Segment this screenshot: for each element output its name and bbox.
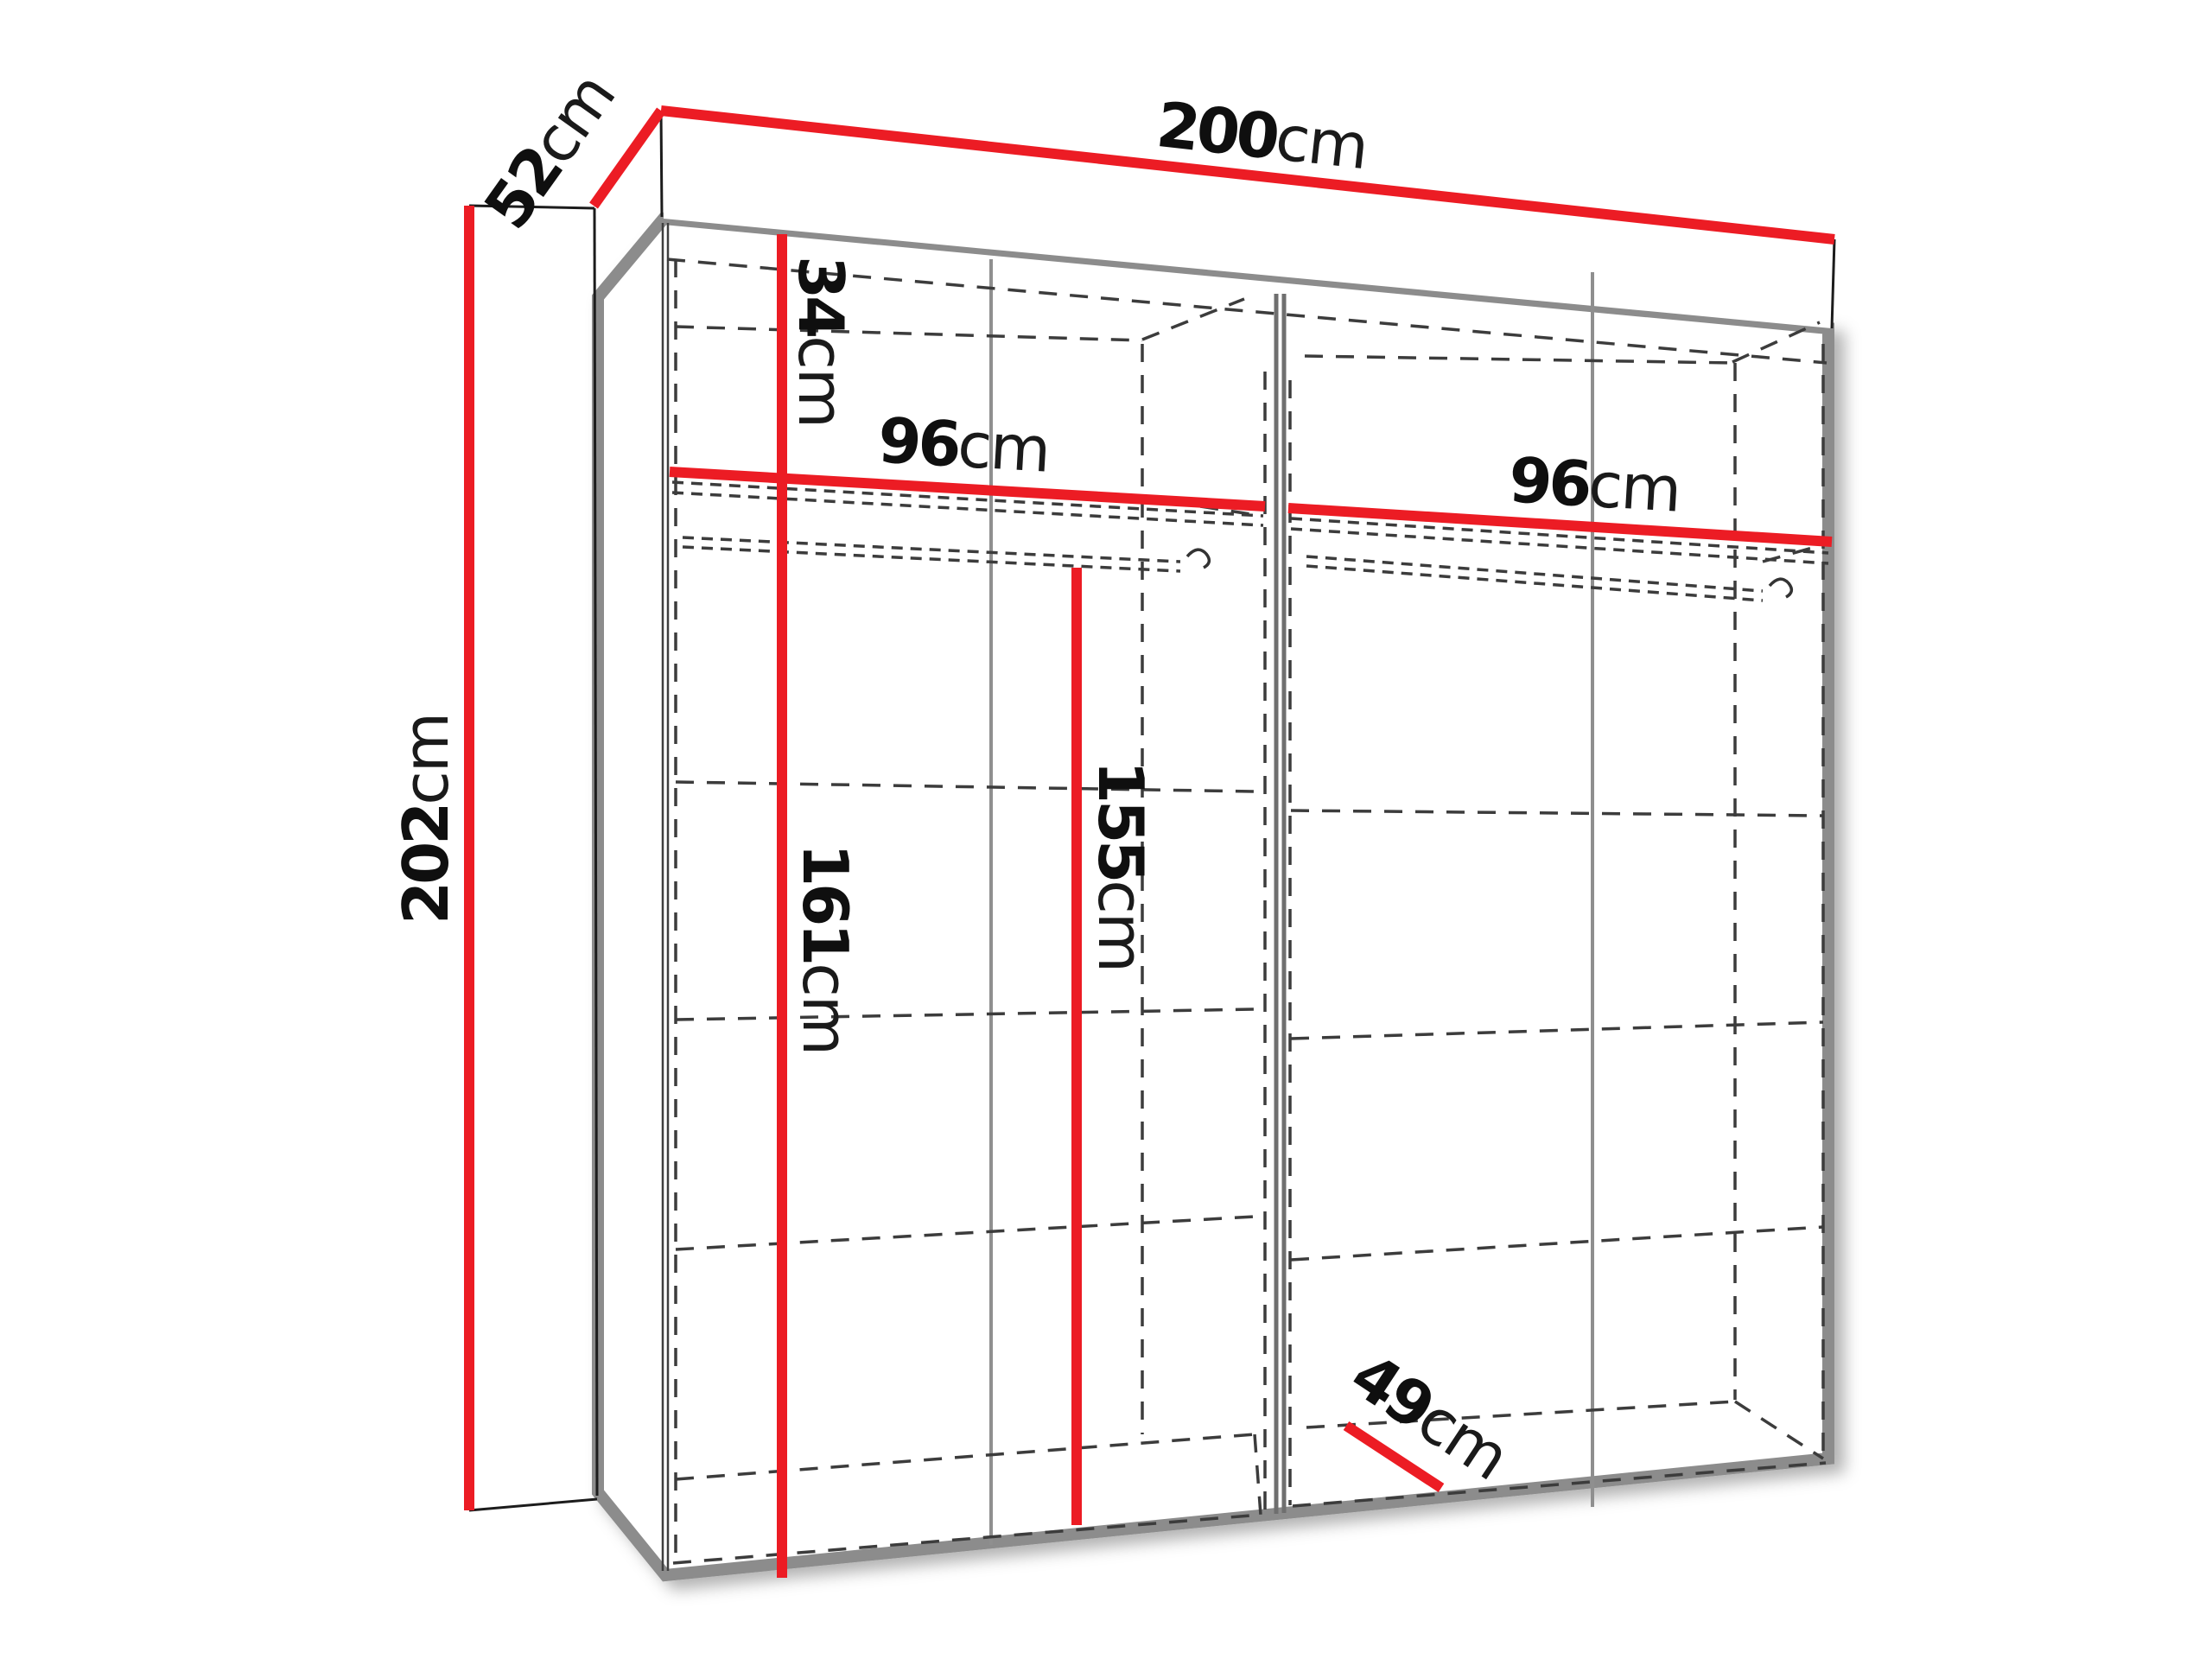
outline-and-extensions bbox=[469, 206, 597, 1510]
height-extension-bottom bbox=[469, 1499, 597, 1510]
label-right-section-width: 96cm bbox=[1507, 443, 1682, 526]
label-left-section-width: 96cm bbox=[876, 404, 1051, 486]
top-face-left-edge bbox=[661, 111, 662, 217]
label-left-inner-height: 161cm bbox=[789, 843, 861, 1054]
label-hanging-height: 155cm bbox=[1084, 760, 1157, 971]
diagram-canvas: 200cm 52cm 202cm 34cm 96cm 96cm 161cm 15… bbox=[0, 0, 2212, 1659]
label-total-height: 202cm bbox=[390, 714, 462, 925]
label-top-shelf-height: 34cm bbox=[785, 256, 857, 427]
wardrobe-dimension-diagram: 200cm 52cm 202cm 34cm 96cm 96cm 161cm 15… bbox=[0, 0, 2212, 1659]
label-total-depth: 52cm bbox=[470, 60, 628, 242]
